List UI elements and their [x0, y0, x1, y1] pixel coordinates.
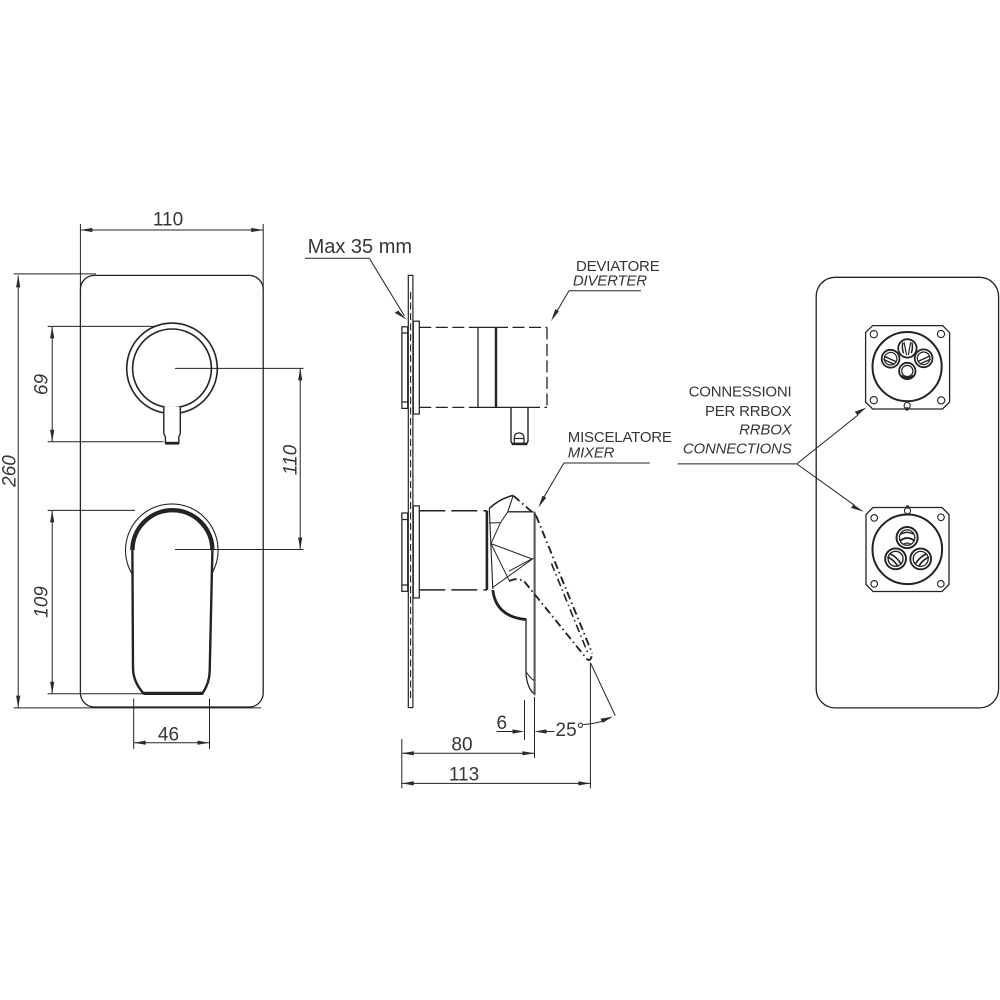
svg-text:MIXER: MIXER: [568, 445, 615, 462]
svg-text:80: 80: [451, 735, 472, 756]
svg-text:CONNESSIONI: CONNESSIONI: [689, 383, 792, 400]
svg-text:PER RRBOX: PER RRBOX: [705, 403, 792, 420]
svg-text:110: 110: [153, 210, 183, 231]
svg-text:69: 69: [32, 374, 53, 396]
svg-text:46: 46: [158, 725, 179, 746]
svg-text:260: 260: [0, 455, 21, 488]
svg-text:109: 109: [32, 586, 53, 618]
svg-text:110: 110: [281, 444, 302, 475]
svg-text:CONNECTIONS: CONNECTIONS: [683, 441, 792, 458]
svg-text:25°: 25°: [556, 720, 585, 741]
svg-text:113: 113: [449, 765, 479, 786]
svg-text:MISCELATORE: MISCELATORE: [568, 429, 672, 446]
svg-text:DIVERTER: DIVERTER: [573, 273, 647, 290]
svg-text:6: 6: [497, 713, 508, 734]
svg-text:Max 35 mm: Max 35 mm: [308, 236, 412, 258]
svg-text:RRBOX: RRBOX: [739, 422, 793, 439]
